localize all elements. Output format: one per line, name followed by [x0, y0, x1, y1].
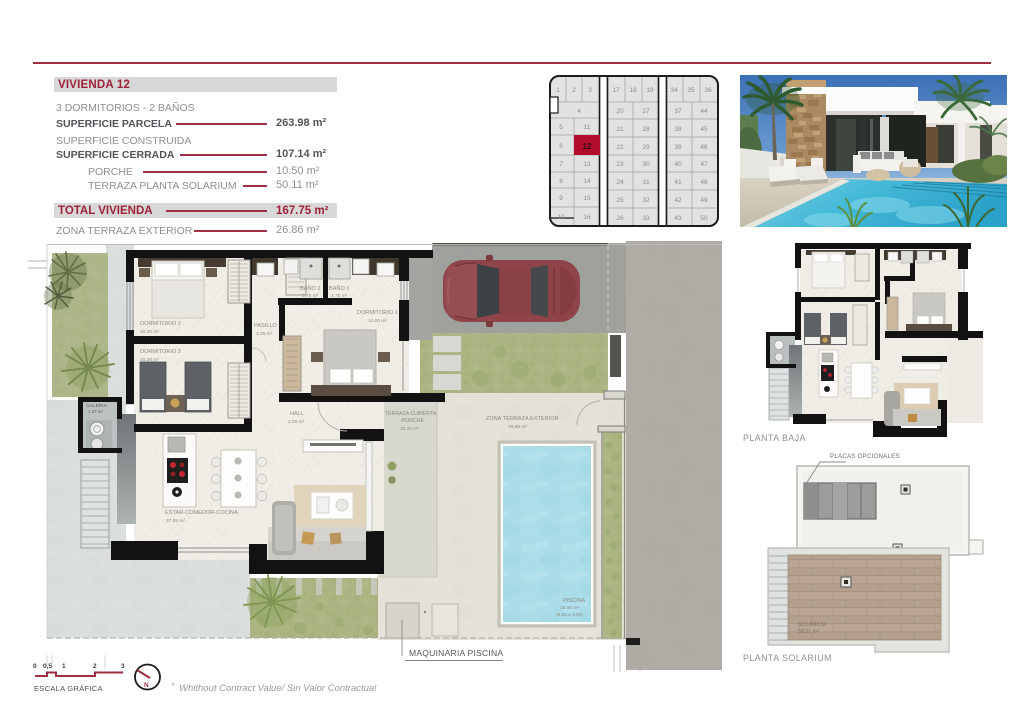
svg-text:22: 22 [616, 144, 624, 151]
svg-text:DORMITORIO 2: DORMITORIO 2 [140, 321, 181, 327]
svg-text:BAÑO 2: BAÑO 2 [300, 285, 321, 292]
svg-text:48: 48 [700, 179, 708, 186]
svg-text:37.05 m²: 37.05 m² [166, 518, 185, 524]
svg-text:26.86 m²: 26.86 m² [508, 424, 527, 430]
svg-text:50.11 m²: 50.11 m² [798, 629, 819, 635]
svg-text:40: 40 [674, 161, 682, 168]
svg-text:18: 18 [629, 87, 637, 94]
svg-text:1: 1 [62, 663, 66, 670]
svg-text:8: 8 [559, 178, 563, 185]
svg-text:12.00 m²: 12.00 m² [368, 318, 387, 324]
svg-text:41: 41 [674, 179, 682, 186]
svg-text:5: 5 [559, 124, 563, 131]
svg-text:17: 17 [612, 87, 620, 94]
svg-text:13: 13 [583, 161, 591, 168]
svg-text:SOLARIUM: SOLARIUM [798, 622, 827, 628]
svg-text:-PORCHE: -PORCHE [400, 418, 424, 424]
svg-text:2: 2 [93, 663, 97, 670]
svg-text:1.37 m²: 1.37 m² [88, 409, 103, 414]
svg-text:26: 26 [616, 215, 624, 222]
svg-text:4: 4 [577, 108, 581, 115]
svg-text:32: 32 [642, 197, 650, 204]
svg-text:14: 14 [583, 178, 591, 185]
svg-text:6: 6 [559, 143, 563, 150]
svg-text:10: 10 [557, 214, 565, 221]
svg-text:20: 20 [616, 108, 624, 115]
svg-text:0: 0 [33, 663, 37, 670]
svg-text:16: 16 [583, 214, 591, 221]
svg-text:ESTAR-COMEDOR-COCINA: ESTAR-COMEDOR-COCINA [165, 510, 238, 516]
svg-text:18.00 m²: 18.00 m² [560, 605, 579, 611]
svg-text:27: 27 [642, 108, 650, 115]
svg-text:49: 49 [700, 197, 708, 204]
svg-text:3: 3 [121, 663, 125, 670]
svg-text:2: 2 [572, 87, 576, 94]
svg-text:3: 3 [588, 87, 592, 94]
svg-text:TERRAZA CUBIERTA: TERRAZA CUBIERTA [385, 411, 437, 417]
svg-text:7: 7 [559, 161, 563, 168]
svg-text:44: 44 [700, 108, 708, 115]
svg-text:10.26 m²: 10.26 m² [140, 329, 159, 335]
svg-text:(6.00 x 3.00): (6.00 x 3.00) [556, 612, 583, 618]
svg-text:15: 15 [583, 195, 591, 202]
svg-text:45: 45 [700, 126, 708, 133]
svg-text:BAÑO 1: BAÑO 1 [329, 285, 350, 292]
svg-text:28: 28 [642, 126, 650, 133]
svg-text:12: 12 [583, 142, 592, 151]
svg-text:23: 23 [616, 161, 624, 168]
svg-text:43: 43 [674, 215, 682, 222]
svg-text:DORMITORIO 1: DORMITORIO 1 [357, 310, 398, 316]
svg-text:MAQUINARIA PISCINA: MAQUINARIA PISCINA [409, 648, 503, 658]
svg-text:10.26 m²: 10.26 m² [140, 357, 159, 363]
svg-text:36: 36 [704, 87, 712, 94]
svg-text:29: 29 [642, 144, 650, 151]
svg-text:35: 35 [687, 87, 695, 94]
svg-text:50: 50 [700, 215, 708, 222]
svg-text:31: 31 [642, 179, 650, 186]
svg-text:21: 21 [616, 126, 624, 133]
svg-text:DORMITORIO 3: DORMITORIO 3 [140, 349, 181, 355]
svg-text:ZONA TERRAZA EXTERIOR: ZONA TERRAZA EXTERIOR [486, 416, 559, 422]
svg-text:10.30 m²: 10.30 m² [400, 426, 419, 432]
svg-text:2.00 m²: 2.00 m² [288, 419, 305, 425]
svg-text:47: 47 [700, 161, 708, 168]
svg-text:3.35 m²: 3.35 m² [256, 331, 273, 337]
svg-text:38: 38 [674, 126, 682, 133]
svg-text:9: 9 [559, 195, 563, 202]
svg-text:46: 46 [700, 144, 708, 151]
svg-text:25: 25 [616, 197, 624, 204]
svg-text:34: 34 [670, 87, 678, 94]
svg-text:HALL: HALL [290, 411, 304, 417]
svg-text:1: 1 [556, 87, 560, 94]
svg-text:PASILLO: PASILLO [254, 323, 278, 329]
svg-text:30: 30 [642, 161, 650, 168]
svg-text:0,5: 0,5 [43, 663, 52, 670]
svg-text:19: 19 [646, 87, 654, 94]
svg-text:11: 11 [584, 124, 591, 131]
svg-text:39: 39 [674, 144, 682, 151]
svg-text:N: N [144, 682, 149, 689]
svg-text:42: 42 [674, 197, 682, 204]
svg-text:33: 33 [642, 215, 650, 222]
svg-text:3.75 m²: 3.75 m² [302, 293, 319, 299]
svg-text:PISCINA: PISCINA [563, 598, 586, 604]
svg-text:24: 24 [616, 179, 624, 186]
svg-text:3.75 m²: 3.75 m² [331, 293, 348, 299]
svg-text:37: 37 [674, 108, 682, 115]
